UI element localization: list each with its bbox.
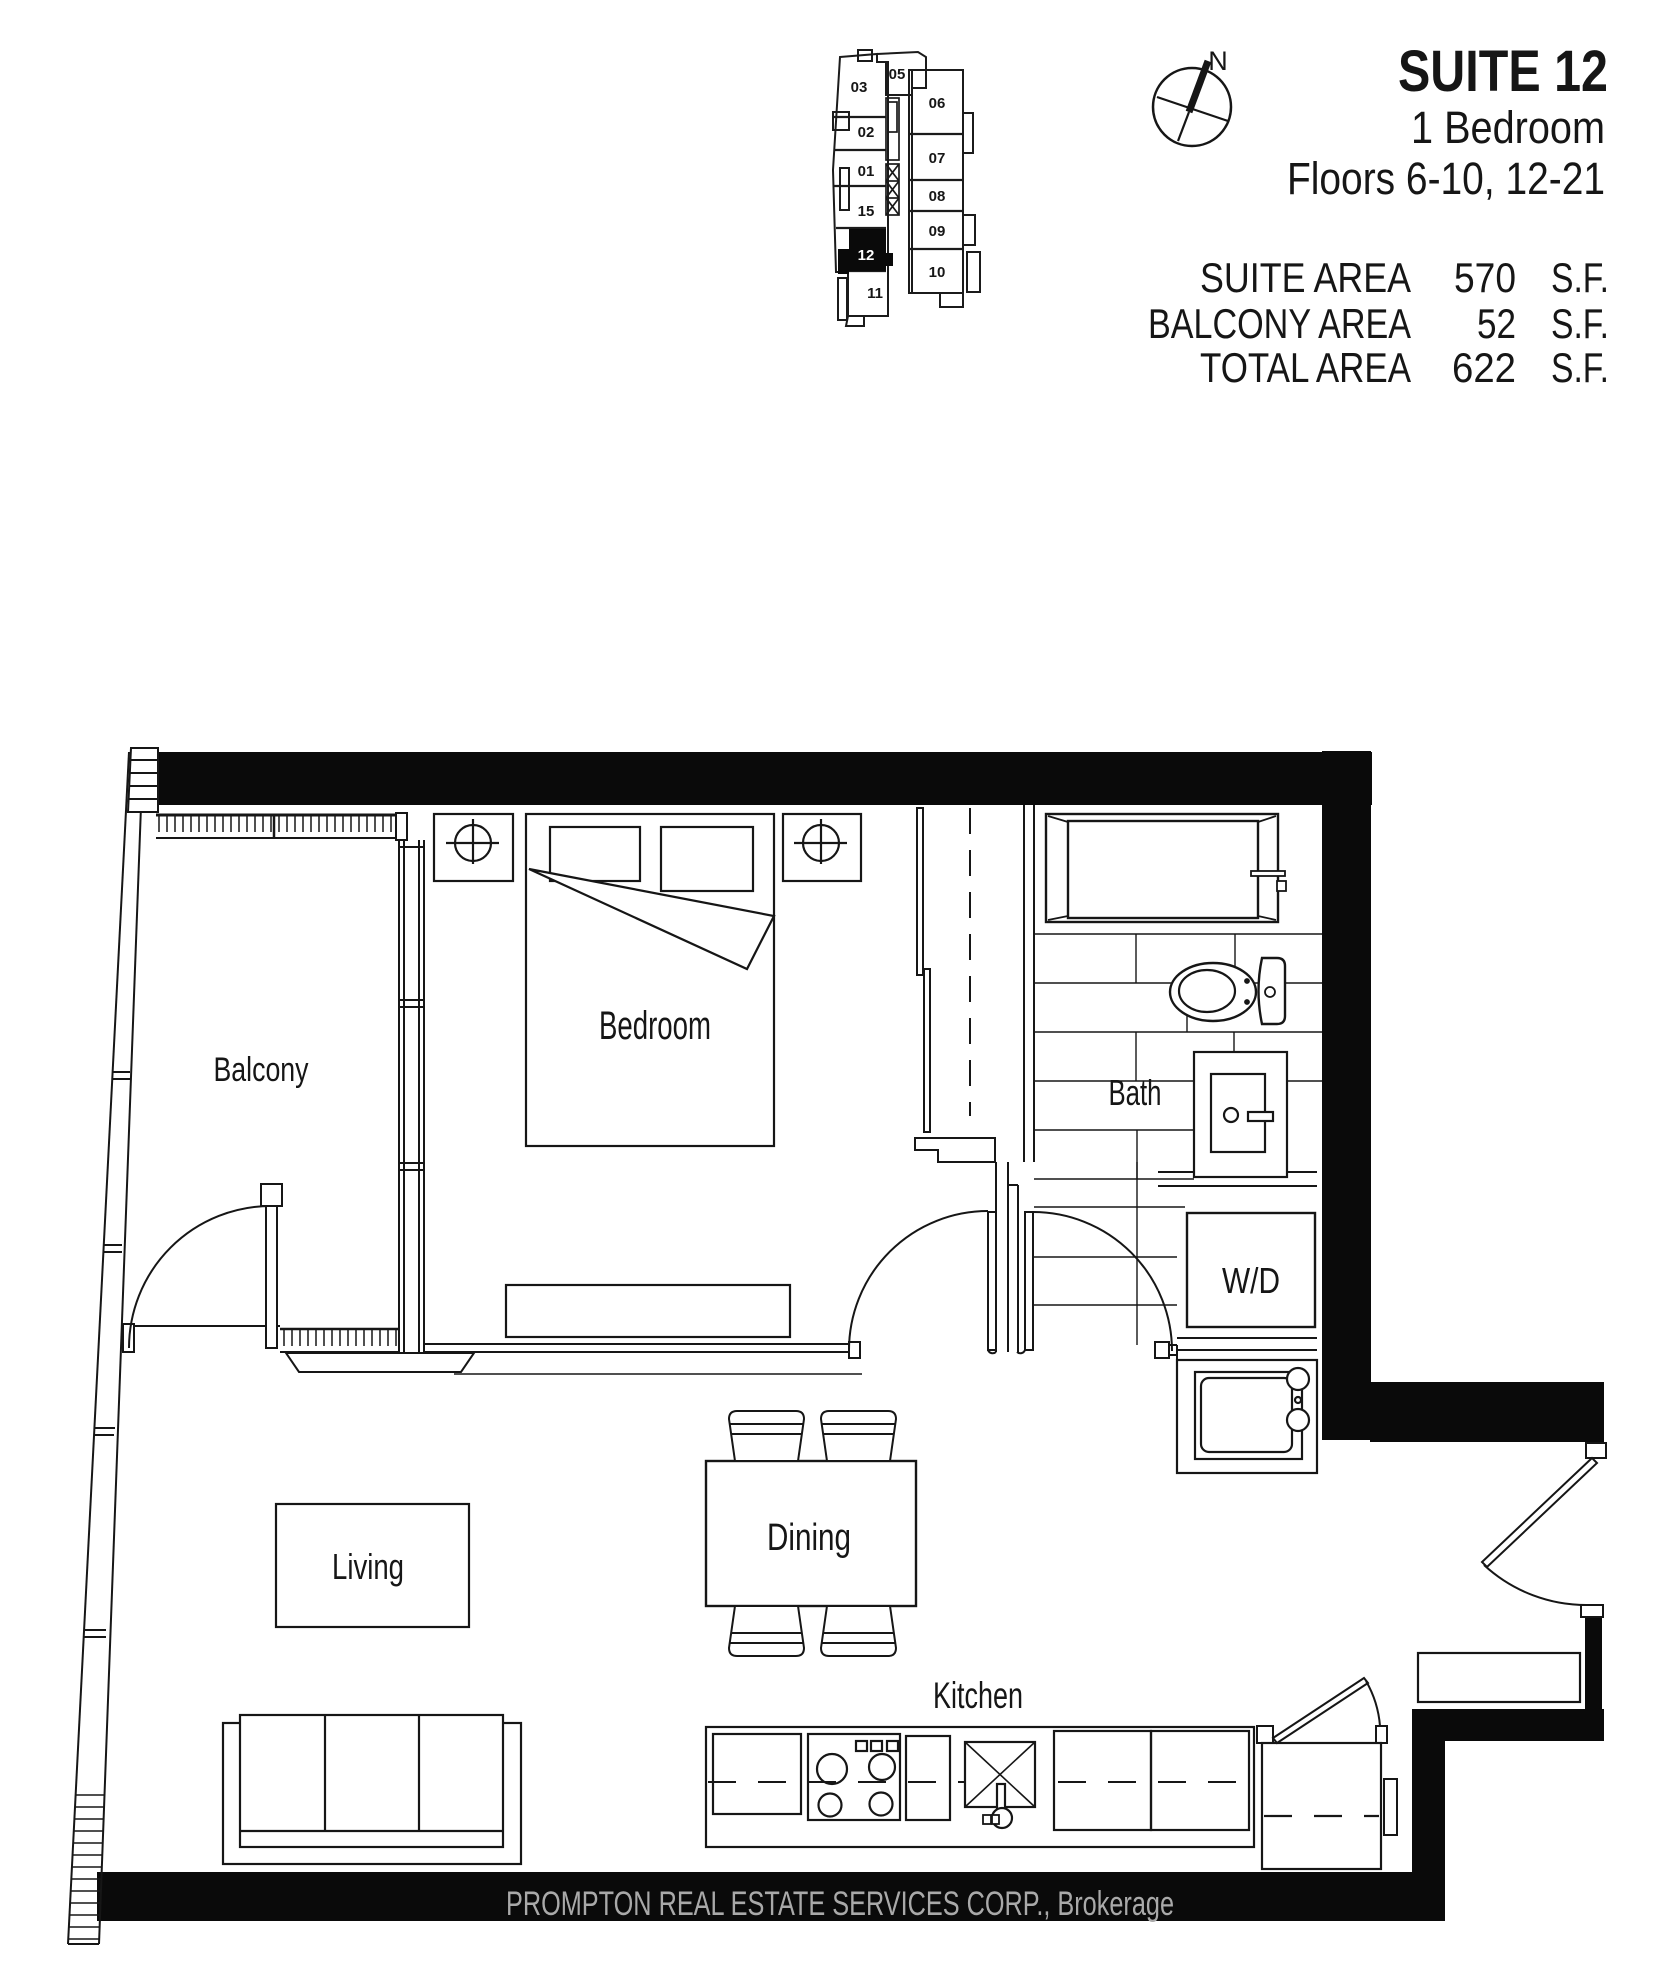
svg-text:08: 08 [929,188,946,205]
svg-text:BALCONY AREA: BALCONY AREA [1148,300,1411,347]
svg-text:N: N [1208,46,1228,76]
svg-text:570: 570 [1454,254,1516,301]
svg-text:TOTAL AREA: TOTAL AREA [1200,344,1411,391]
svg-text:15: 15 [858,203,875,220]
svg-text:06: 06 [929,95,946,112]
svg-text:10: 10 [929,264,946,281]
svg-text:03: 03 [851,79,868,96]
svg-text:Floors 6-10, 12-21: Floors 6-10, 12-21 [1287,153,1605,204]
svg-text:Bedroom: Bedroom [599,1004,711,1048]
svg-text:Balcony: Balcony [214,1051,309,1089]
svg-text:S.F.: S.F. [1551,344,1609,391]
svg-text:PROMPTON REAL ESTATE SERVICES: PROMPTON REAL ESTATE SERVICES CORP., Bro… [506,1885,1174,1923]
svg-text:Kitchen: Kitchen [933,1675,1023,1716]
svg-text:SUITE AREA: SUITE AREA [1200,254,1411,301]
svg-text:05: 05 [889,66,906,83]
svg-text:S.F.: S.F. [1551,254,1609,301]
svg-text:Dining: Dining [767,1517,851,1559]
svg-text:09: 09 [929,223,946,240]
svg-text:52: 52 [1477,300,1516,347]
svg-text:622: 622 [1452,344,1516,391]
svg-text:07: 07 [929,150,946,167]
svg-text:11: 11 [867,285,883,302]
svg-text:S.F.: S.F. [1551,300,1609,347]
svg-text:02: 02 [858,124,875,141]
svg-text:Living: Living [332,1546,404,1587]
svg-text:W/D: W/D [1222,1260,1280,1301]
svg-text:1 Bedroom: 1 Bedroom [1411,102,1605,153]
svg-text:01: 01 [858,163,875,180]
svg-text:Bath: Bath [1109,1072,1162,1113]
svg-text:SUITE 12: SUITE 12 [1398,39,1608,104]
svg-text:12: 12 [858,247,875,264]
